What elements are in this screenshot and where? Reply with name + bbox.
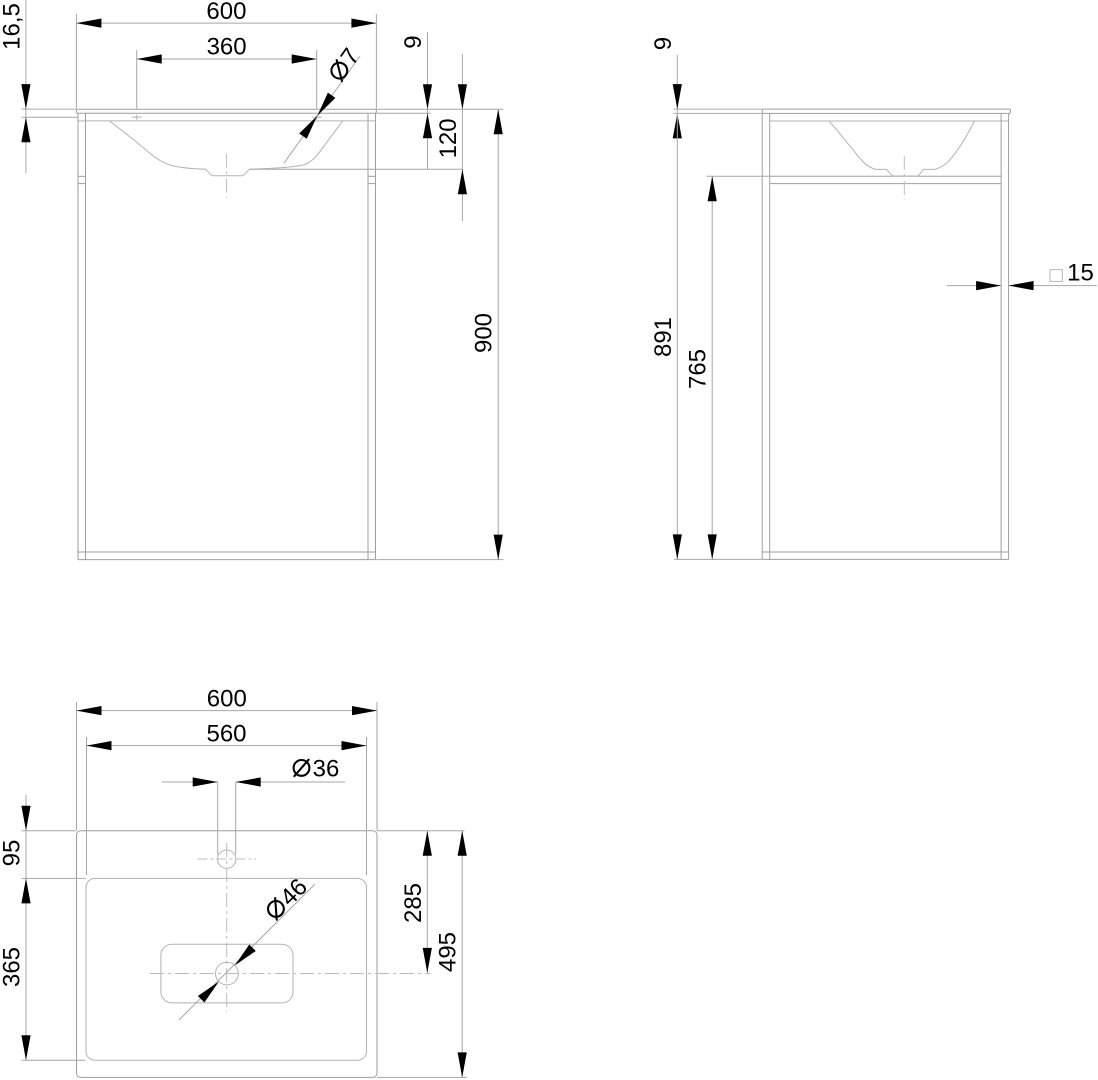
svg-text:120: 120 (435, 118, 462, 158)
svg-text:765: 765 (685, 349, 712, 389)
svg-text:36: 36 (313, 756, 340, 783)
svg-text:285: 285 (400, 883, 427, 923)
svg-text:560: 560 (206, 720, 246, 747)
svg-text:900: 900 (471, 313, 498, 353)
svg-text:891: 891 (650, 317, 677, 357)
svg-text:600: 600 (206, 0, 246, 25)
svg-text:600: 600 (207, 685, 247, 712)
svg-text:15: 15 (1067, 260, 1094, 287)
svg-text:360: 360 (207, 33, 247, 60)
svg-text:9: 9 (650, 37, 677, 50)
svg-text:495: 495 (435, 932, 462, 972)
svg-text:95: 95 (0, 840, 26, 867)
svg-text:16,5: 16,5 (0, 3, 25, 50)
svg-text:9: 9 (400, 35, 427, 48)
svg-text:365: 365 (0, 947, 26, 987)
